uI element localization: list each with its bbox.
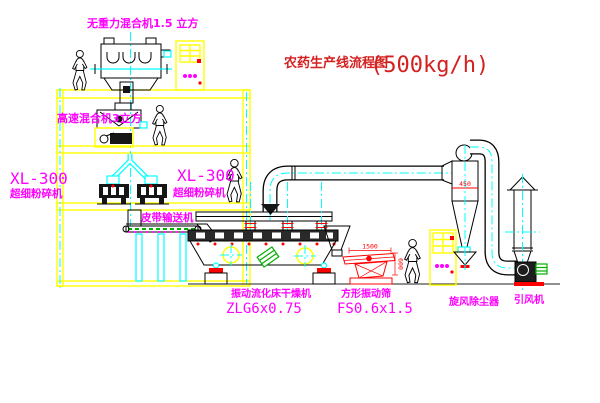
crosshair-symbol: [220, 244, 242, 266]
vibration-motor: [257, 247, 279, 267]
cyclone-separator: [442, 145, 478, 270]
label-cyclone: 旋风除尘器: [448, 295, 500, 308]
label-screen-model: FS0.6x1.5: [337, 301, 413, 317]
fan-suction-duct: [470, 147, 517, 268]
label-mill-center-name: 超细粉碎机: [172, 186, 226, 199]
flow-diagram-canvas: 无重力混合机1.5 立方 农药生产线流程图 (500kg/h) 高速混合机3立方…: [0, 0, 600, 403]
control-cabinet-ground: [430, 230, 456, 285]
dim-screen-length: 1500: [362, 243, 378, 251]
title-capacity: (500kg/h): [370, 53, 489, 78]
person-top-floor: [73, 50, 87, 90]
label-screen-name: 方形振动筛: [341, 287, 391, 300]
vibrating-screen: [343, 248, 398, 285]
pulverizer-right: [135, 176, 169, 204]
label-dryer-model: ZLG6x0.75: [226, 301, 302, 317]
fan-base: [514, 282, 544, 286]
person-ground: [405, 239, 421, 282]
cad-drawing: 无重力混合机1.5 立方 农药生产线流程图 (500kg/h) 高速混合机3立方…: [0, 0, 600, 403]
label-dryer-name: 振动流化床干燥机: [231, 287, 311, 300]
label-mill-left-name: 超细粉碎机: [9, 187, 63, 200]
label-gravity-mixer: 无重力混合机1.5 立方: [86, 16, 198, 30]
centerlines: [60, 32, 247, 288]
induced-draft-fan: [514, 262, 547, 286]
label-high-speed-mixer: 高速混合机3立方: [57, 111, 142, 125]
person-second-floor: [153, 105, 167, 145]
control-cabinet-top: [176, 41, 204, 90]
label-mill-center-model: XL-300: [177, 166, 235, 185]
spring-support-right: [313, 263, 335, 284]
dim-screen-height: 600: [397, 258, 405, 270]
dim-cyclone-band: 450: [459, 180, 471, 188]
high-speed-mixer: [95, 103, 147, 147]
crosshair-symbol: [294, 245, 316, 267]
label-fan: 引风机: [514, 293, 544, 306]
pulverizer-left: [97, 176, 131, 204]
label-belt-conveyor: 皮带输送机: [140, 211, 194, 224]
label-mill-left-model: XL-300: [10, 169, 68, 188]
